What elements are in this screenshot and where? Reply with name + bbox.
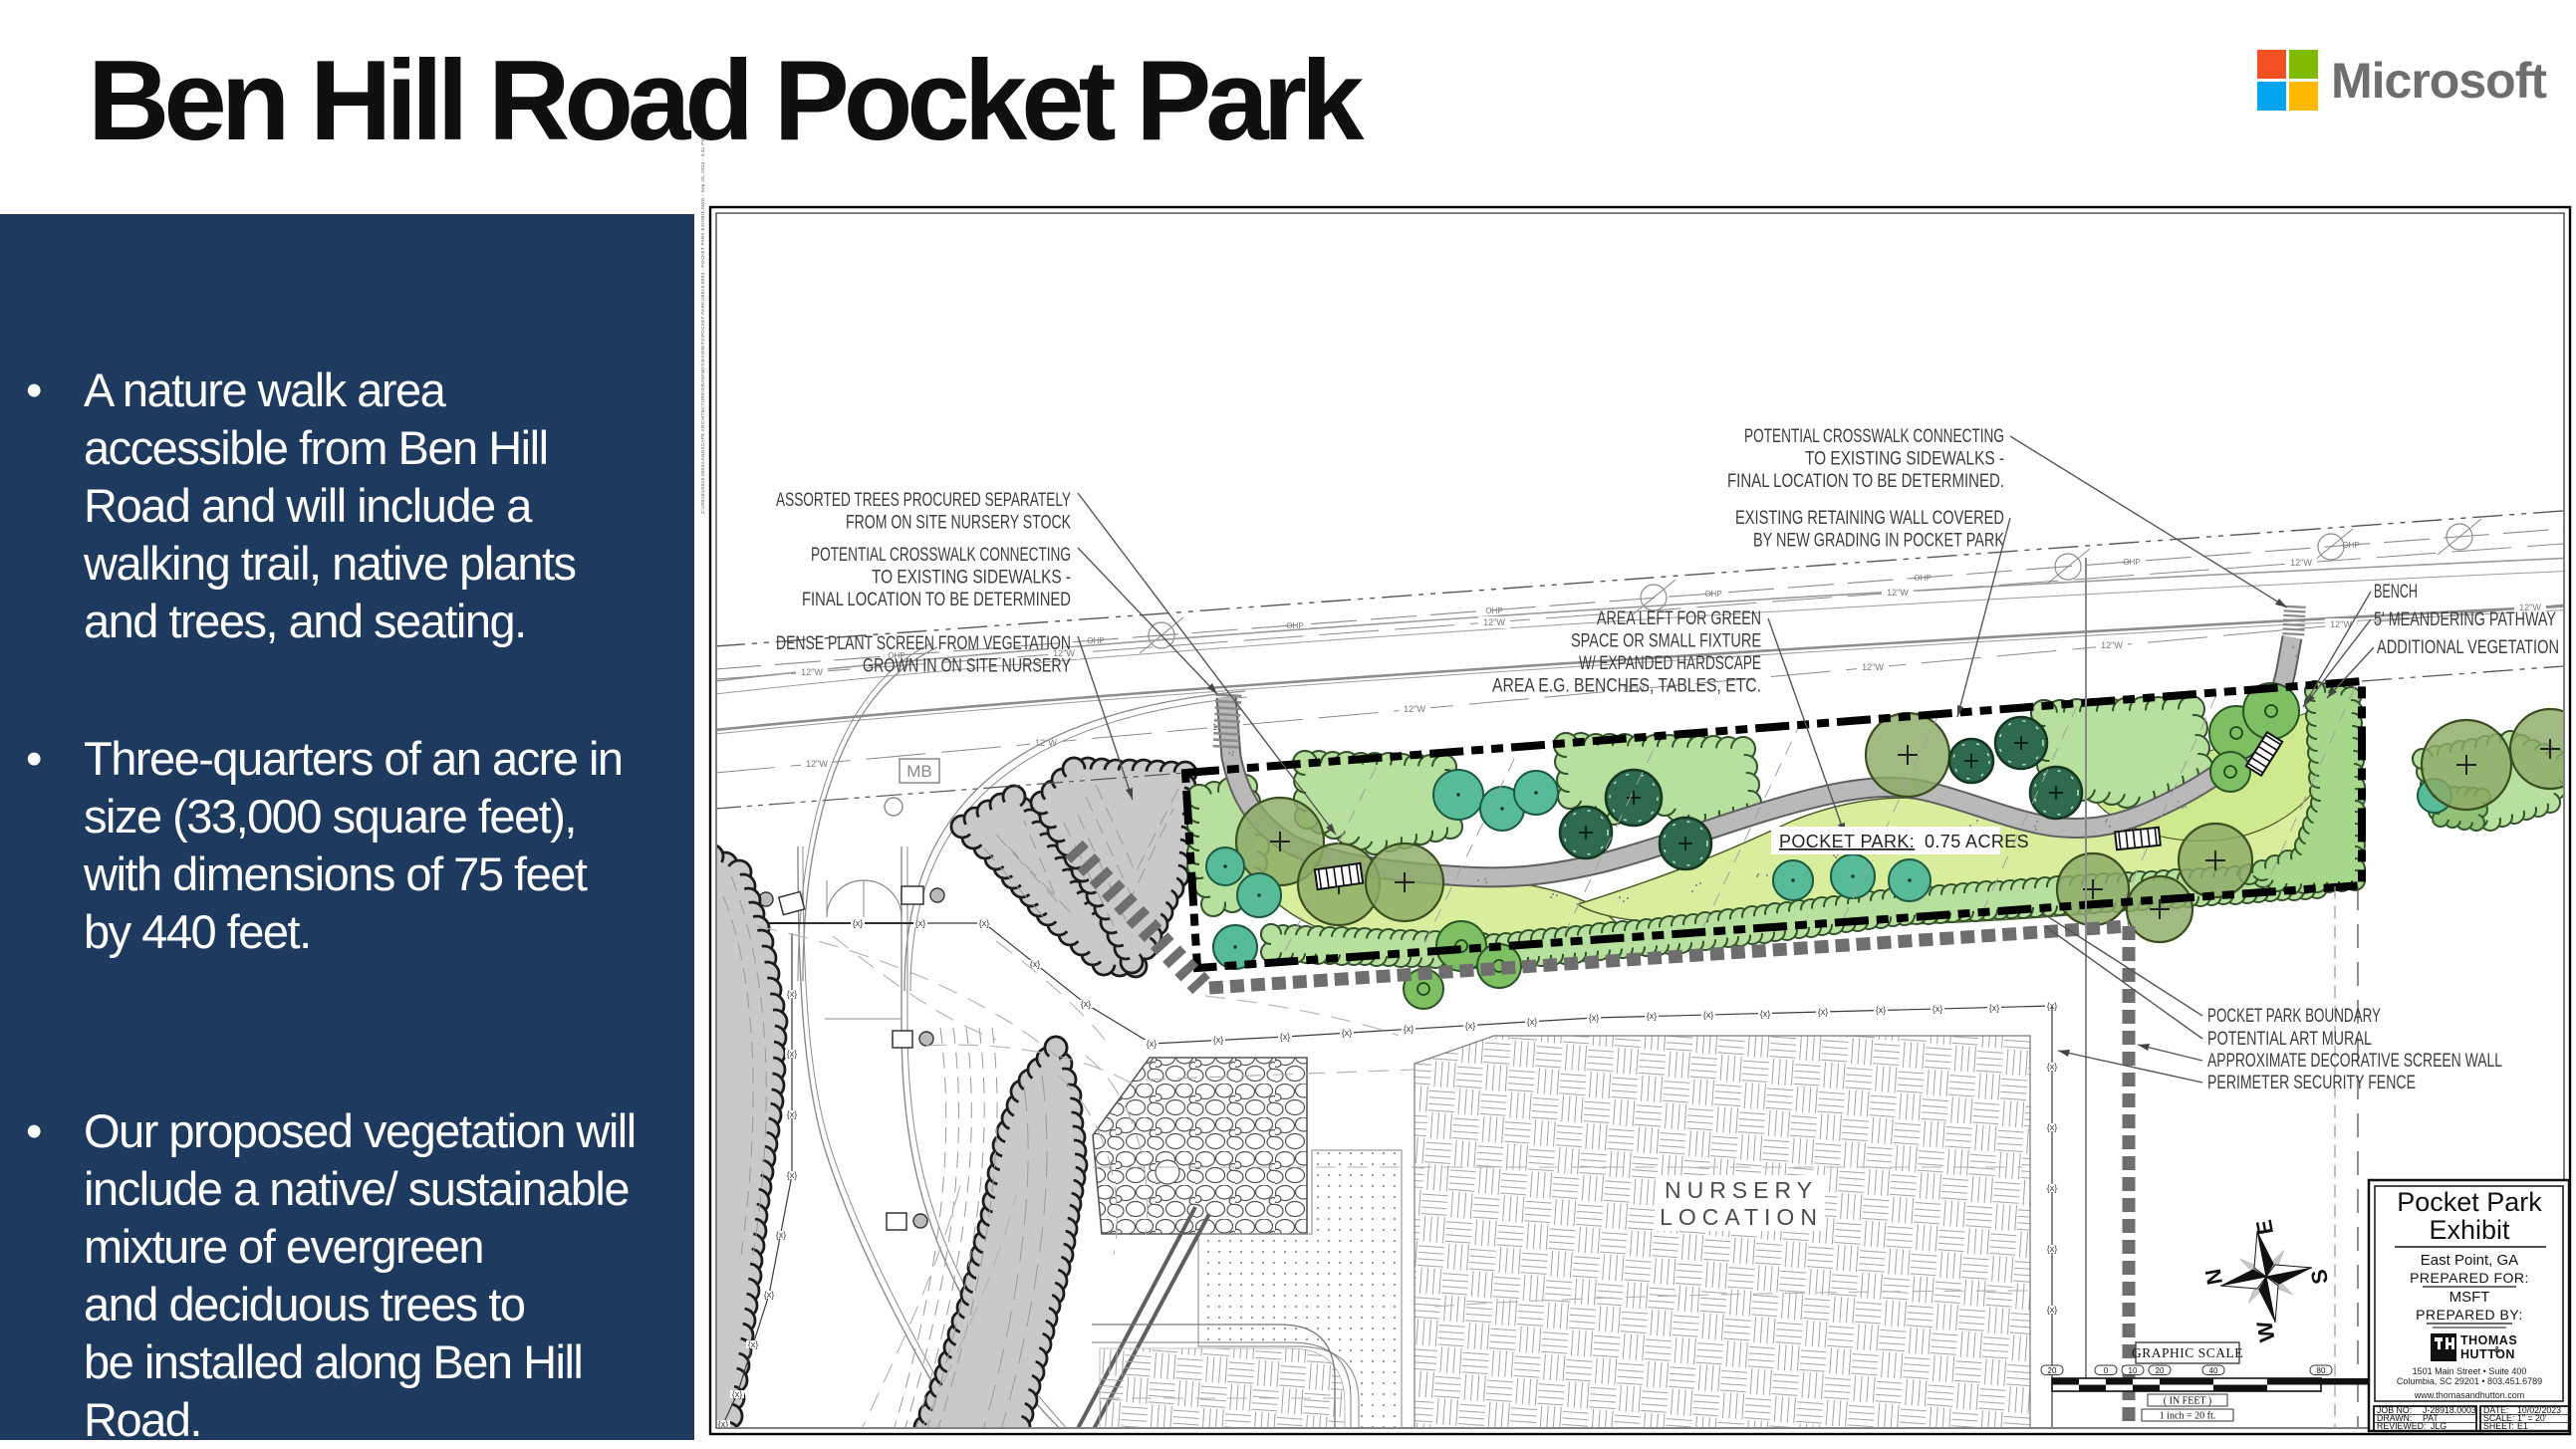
svg-text:1 inch = 20 ft.: 1 inch = 20 ft. [2160,1411,2215,1422]
svg-text:{x}: {x} [2047,1244,2058,1254]
svg-text:FINAL LOCATION TO BE DETERMINE: FINAL LOCATION TO BE DETERMINED [802,590,1071,610]
svg-text:12"W: 12"W [1483,617,1505,627]
svg-text:POTENTIAL CROSSWALK CONNECTING: POTENTIAL CROSSWALK CONNECTING [1744,426,2004,447]
svg-text:GRAPHIC SCALE: GRAPHIC SCALE [2132,1345,2243,1360]
svg-text:TO EXISTING SIDEWALKS -: TO EXISTING SIDEWALKS - [1805,449,2004,470]
svg-text:{x}: {x} [853,918,864,928]
svg-text:12"W: 12"W [1404,704,1425,714]
svg-text:12"W: 12"W [2101,640,2123,650]
svg-text:HUTTON: HUTTON [2460,1347,2515,1361]
svg-text:{x}: {x} [1342,1028,1353,1038]
svg-text:DENSE PLANT SCREEN FROM VEGETA: DENSE PLANT SCREEN FROM VEGETATION [776,633,1071,654]
svg-text:12"W: 12"W [806,759,828,769]
svg-text:0: 0 [2104,1366,2109,1375]
svg-text:20: 20 [2156,1366,2165,1375]
svg-text:10: 10 [2129,1366,2138,1375]
svg-text:20: 20 [2048,1366,2057,1375]
svg-text:AREA E.G. BENCHES, TABLES, ETC: AREA E.G. BENCHES, TABLES, ETC. [1492,676,1761,697]
svg-text:{x}: {x} [1213,1035,1224,1045]
svg-text:{x}: {x} [1760,1009,1771,1019]
svg-text:{x}: {x} [732,1389,743,1399]
svg-text:12"W: 12"W [801,667,823,677]
svg-text:{x}: {x} [1703,1010,1714,1020]
svg-text:POTENTIAL ART MURAL: POTENTIAL ART MURAL [2207,1029,2372,1050]
svg-text:POTENTIAL CROSSWALK CONNECTING: POTENTIAL CROSSWALK CONNECTING [811,545,1071,566]
svg-text:5' MEANDERING PATHWAY: 5' MEANDERING PATHWAY [2374,609,2556,630]
svg-text:12"W: 12"W [2290,558,2312,568]
svg-text:THOMAS: THOMAS [2460,1333,2517,1347]
svg-text:FINAL LOCATION TO BE DETERMINE: FINAL LOCATION TO BE DETERMINED. [1727,471,2004,492]
svg-text:{x}: {x} [787,1049,798,1059]
svg-text:PREPARED BY:: PREPARED BY: [2416,1307,2523,1323]
svg-text:ADDITIONAL VEGETATION: ADDITIONAL VEGETATION [2377,637,2559,658]
svg-text:E1: E1 [2517,1421,2528,1431]
svg-text:&: & [2494,1345,2500,1354]
svg-text:REVIEWED:: REVIEWED: [2377,1421,2426,1431]
svg-text:APPROXIMATE DECORATIVE SCREEN: APPROXIMATE DECORATIVE SCREEN WALL [2207,1051,2502,1072]
svg-text:{x}: {x} [2047,1305,2058,1315]
svg-text:{x}: {x} [915,918,926,928]
svg-text:{x}: {x} [1647,1011,1658,1021]
svg-text:OHP: OHP [2123,558,2140,567]
svg-text:{x}: {x} [1030,959,1041,969]
svg-text:PERIMETER SECURITY FENCE: PERIMETER SECURITY FENCE [2207,1073,2416,1093]
svg-text:OHP: OHP [1704,590,1721,599]
svg-text:0.75 ACRES: 0.75 ACRES [1925,832,2029,851]
svg-text:{x}: {x} [1465,1021,1476,1031]
svg-text:{x}: {x} [2047,1183,2058,1193]
svg-text:OHP: OHP [1914,574,1931,583]
svg-text:www.thomasandhutton.com: www.thomasandhutton.com [2414,1390,2525,1400]
svg-text:{x}: {x} [776,1230,787,1240]
svg-text:East Point, GA: East Point, GA [2421,1252,2518,1269]
svg-text:Z:\28918\28918.0003\LANDSCAPE: Z:\28918\28918.0003\LANDSCAPE ARCHITECTU… [700,137,705,514]
svg-text:FROM ON SITE NURSERY STOCK: FROM ON SITE NURSERY STOCK [846,513,1071,534]
svg-text:{x}: {x} [1081,999,1092,1009]
svg-text:{x}: {x} [1404,1024,1415,1034]
svg-text:SPACE OR SMALL FIXTURE: SPACE OR SMALL FIXTURE [1571,631,1761,652]
svg-text:OHP: OHP [2342,541,2359,550]
svg-text:JLG: JLG [2431,1421,2447,1431]
svg-text:( IN FEET ): ( IN FEET ) [2164,1396,2211,1407]
svg-text:MSFT: MSFT [2449,1289,2490,1306]
svg-text:12"W: 12"W [1887,588,1909,598]
svg-text:{x}: {x} [748,1339,759,1349]
svg-text:PREPARED FOR:: PREPARED FOR: [2410,1270,2529,1286]
svg-text:{x}: {x} [1147,1039,1158,1049]
svg-text:{x}: {x} [2047,1122,2058,1132]
svg-text:ASSORTED TREES PROCURED SEPARA: ASSORTED TREES PROCURED SEPARATELY [776,490,1071,511]
svg-text:{x}: {x} [979,918,990,928]
svg-text:{x}: {x} [787,1109,798,1119]
svg-text:BENCH: BENCH [2374,582,2418,603]
svg-text:{x}: {x} [2047,1062,2058,1072]
svg-text:Exhibit: Exhibit [2429,1215,2510,1245]
svg-text:{x}: {x} [787,1170,798,1180]
svg-text:W/ EXPANDED HARDSCAPE: W/ EXPANDED HARDSCAPE [1579,653,1761,674]
svg-text:{x}: {x} [1818,1007,1829,1017]
svg-text:Pocket Park: Pocket Park [2397,1187,2542,1217]
svg-text:{x}: {x} [1527,1017,1538,1027]
svg-text:POCKET PARK:: POCKET PARK: [1779,832,1915,851]
svg-text:LOCATION: LOCATION [1660,1204,1823,1230]
svg-text:12"W: 12"W [1035,738,1057,748]
svg-text:SHEET:: SHEET: [2483,1421,2514,1431]
svg-text:BY NEW GRADING IN POCKET PARK: BY NEW GRADING IN POCKET PARK [1753,531,2004,552]
svg-text:40: 40 [2209,1366,2218,1375]
svg-text:{x}: {x} [764,1290,775,1300]
svg-text:MB: MB [906,762,932,781]
svg-text:80: 80 [2317,1366,2326,1375]
svg-text:POCKET PARK BOUNDARY: POCKET PARK BOUNDARY [2207,1006,2381,1027]
svg-text:TO EXISTING SIDEWALKS -: TO EXISTING SIDEWALKS - [872,568,1071,589]
svg-text:EXISTING RETAINING WALL COVERE: EXISTING RETAINING WALL COVERED [1735,508,2004,529]
svg-text:{x}: {x} [1589,1013,1600,1023]
svg-text:1501 Main Street • Suite 400: 1501 Main Street • Suite 400 [2413,1366,2527,1376]
svg-text:{x}: {x} [1932,1004,1943,1014]
svg-text:NURSERY: NURSERY [1665,1177,1818,1203]
svg-text:{x}: {x} [787,989,798,999]
svg-text:{x}: {x} [1989,1003,2000,1013]
svg-text:{x}: {x} [1280,1032,1291,1042]
svg-text:GROWN IN ON SITE NURSERY: GROWN IN ON SITE NURSERY [863,656,1071,677]
svg-text:OHP: OHP [1485,606,1502,615]
svg-text:12"W: 12"W [1862,662,1884,672]
svg-text:{x}: {x} [1876,1005,1887,1015]
svg-text:Columbia, SC 29201 • 803.451: Columbia, SC 29201 • 803.451.6789 [2397,1376,2542,1386]
svg-text:AREA LEFT FOR GREEN: AREA LEFT FOR GREEN [1597,608,1761,629]
